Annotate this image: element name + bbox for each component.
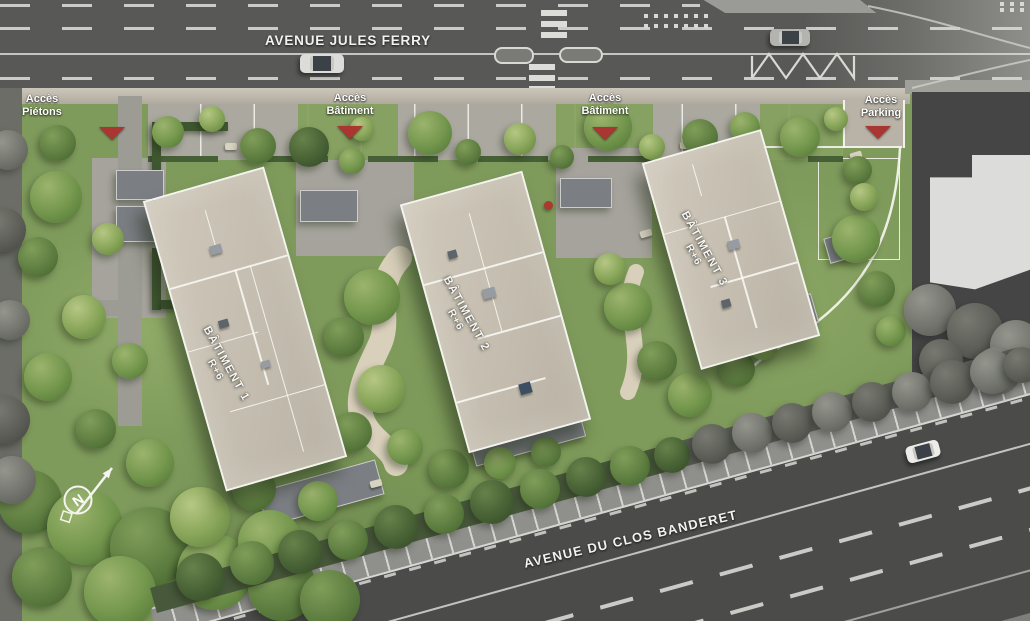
tree — [504, 123, 536, 155]
tree — [610, 446, 650, 486]
north-arrow: N — [48, 460, 128, 532]
tree — [455, 139, 481, 165]
traffic-island — [559, 47, 603, 63]
tree — [84, 556, 156, 621]
roof-line — [170, 255, 288, 290]
side-street-branch — [700, 0, 880, 13]
roof-line — [457, 377, 546, 403]
tree — [289, 127, 329, 167]
tree — [484, 447, 516, 479]
tree — [824, 107, 848, 131]
neighbour-building-footprint — [930, 155, 1030, 295]
tree — [24, 353, 72, 401]
red-parasol — [544, 201, 553, 210]
street-name-top: AVENUE JULES FERRY — [265, 33, 431, 48]
roof-line — [250, 265, 305, 452]
tree — [408, 111, 452, 155]
access-marker-batiment-east — [592, 127, 618, 140]
car — [300, 54, 344, 73]
north-arrow-tail — [61, 511, 72, 522]
tree — [566, 457, 606, 497]
tree-grey — [930, 360, 974, 404]
tree — [30, 171, 82, 223]
tree — [594, 253, 626, 285]
tree — [278, 530, 322, 574]
tree — [339, 148, 365, 174]
tree — [668, 373, 712, 417]
tree — [780, 117, 820, 157]
access-label-parking: Accès Parking — [861, 94, 901, 119]
terrace-deck — [560, 178, 612, 208]
tree — [832, 215, 880, 263]
rooftop-unit — [518, 382, 533, 396]
tree — [18, 237, 58, 277]
tree — [152, 116, 184, 148]
access-line: Bâtiment — [581, 105, 628, 118]
access-line: Piétons — [22, 106, 62, 119]
tree — [637, 341, 677, 381]
access-marker-pietons — [99, 127, 125, 140]
tree — [429, 449, 469, 489]
lane-marking — [0, 77, 1030, 80]
crosswalk — [529, 64, 555, 90]
tree — [324, 317, 364, 357]
tree — [12, 547, 72, 607]
car-cabin — [779, 31, 802, 44]
tree — [876, 316, 906, 346]
access-marker-batiment-west — [337, 126, 363, 139]
road-avenue-jules-ferry — [0, 0, 1030, 88]
access-line: Accès — [581, 92, 628, 105]
tree — [170, 487, 230, 547]
access-line: Bâtiment — [326, 105, 373, 118]
tree-grey — [852, 382, 892, 422]
access-label-pietons: Accès Piétons — [22, 93, 62, 118]
tree — [240, 128, 276, 164]
tree-grey — [892, 372, 932, 412]
fence-line — [758, 146, 902, 148]
traffic-island — [494, 47, 534, 64]
rooftop-unit — [261, 359, 272, 368]
crosswalk — [541, 10, 567, 38]
roof-line — [724, 216, 757, 328]
tree — [40, 125, 76, 161]
tree — [387, 429, 423, 465]
tree — [520, 469, 560, 509]
rooftop-unit — [721, 298, 732, 308]
tree — [298, 481, 338, 521]
car-cabin — [310, 56, 334, 70]
lane-marking — [0, 27, 1030, 30]
tree — [639, 134, 665, 160]
rooftop-unit — [217, 319, 229, 329]
rooftop-unit — [726, 239, 740, 251]
lane-marking — [644, 14, 714, 18]
tree — [76, 409, 116, 449]
tree-grey — [732, 413, 772, 453]
car — [770, 29, 810, 46]
rooftop-unit — [482, 286, 497, 299]
tree — [344, 269, 400, 325]
tree — [424, 494, 464, 534]
tree — [844, 156, 872, 184]
access-marker-parking — [865, 126, 891, 139]
tree — [470, 480, 514, 524]
tree-grey — [772, 403, 812, 443]
tree — [62, 295, 106, 339]
tree — [604, 283, 652, 331]
tree — [654, 437, 690, 473]
terrace-deck — [300, 190, 358, 222]
rooftop-unit — [447, 249, 458, 259]
site-plan: AVENUE JULES FERRY AVENUE DU CLOS BANDER… — [0, 0, 1030, 621]
access-line: Accès — [22, 93, 62, 106]
lane-marking — [0, 4, 700, 7]
roof-line — [477, 315, 560, 339]
tree — [176, 553, 224, 601]
rooftop-unit — [209, 243, 223, 255]
lane-marking — [1000, 8, 1030, 12]
tree — [374, 505, 418, 549]
tree — [230, 541, 274, 585]
access-label-batiment-east: Accès Bâtiment — [581, 92, 628, 117]
tree-grey — [692, 424, 732, 464]
tree — [300, 570, 360, 621]
tree — [199, 106, 225, 132]
terrace-deck — [116, 170, 164, 200]
access-label-batiment-west: Accès Bâtiment — [326, 92, 373, 117]
tree — [328, 520, 368, 560]
tree — [112, 343, 148, 379]
tree — [531, 437, 561, 467]
garden-table — [225, 143, 237, 150]
tree — [850, 183, 878, 211]
tree — [126, 439, 174, 487]
car-cabin — [912, 442, 935, 460]
roof-line — [692, 164, 703, 197]
tree-grey — [812, 392, 852, 432]
tree — [550, 145, 574, 169]
lane-marking — [644, 24, 714, 28]
tree — [357, 365, 405, 413]
access-line: Accès — [326, 92, 373, 105]
access-line: Parking — [861, 107, 901, 120]
tree — [92, 223, 124, 255]
tree — [859, 271, 895, 307]
lane-marking — [1000, 2, 1030, 6]
access-line: Accès — [861, 94, 901, 107]
